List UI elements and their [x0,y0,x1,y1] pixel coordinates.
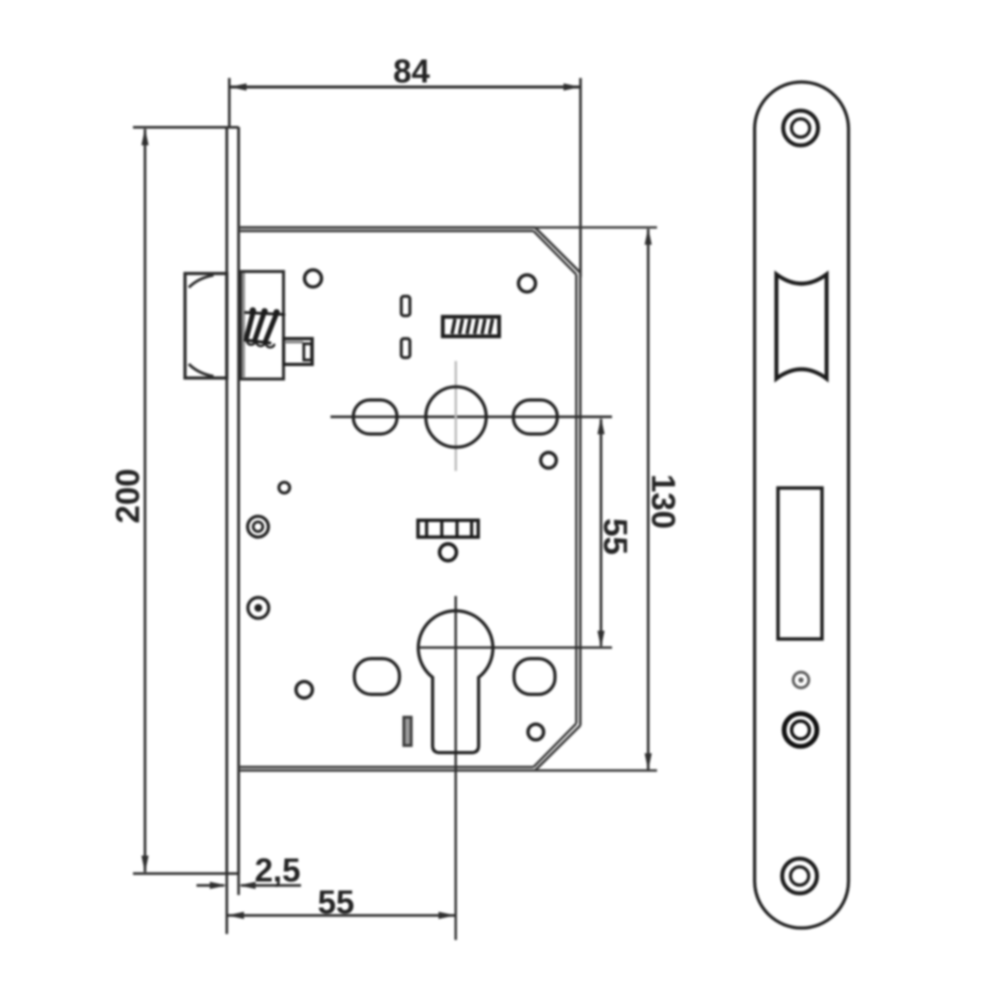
svg-text:200: 200 [109,468,146,523]
svg-text:130: 130 [645,474,682,529]
svg-text:55: 55 [318,884,355,921]
svg-text:84: 84 [393,53,430,90]
svg-text:55: 55 [597,518,634,555]
svg-text:2,5: 2,5 [255,852,301,889]
